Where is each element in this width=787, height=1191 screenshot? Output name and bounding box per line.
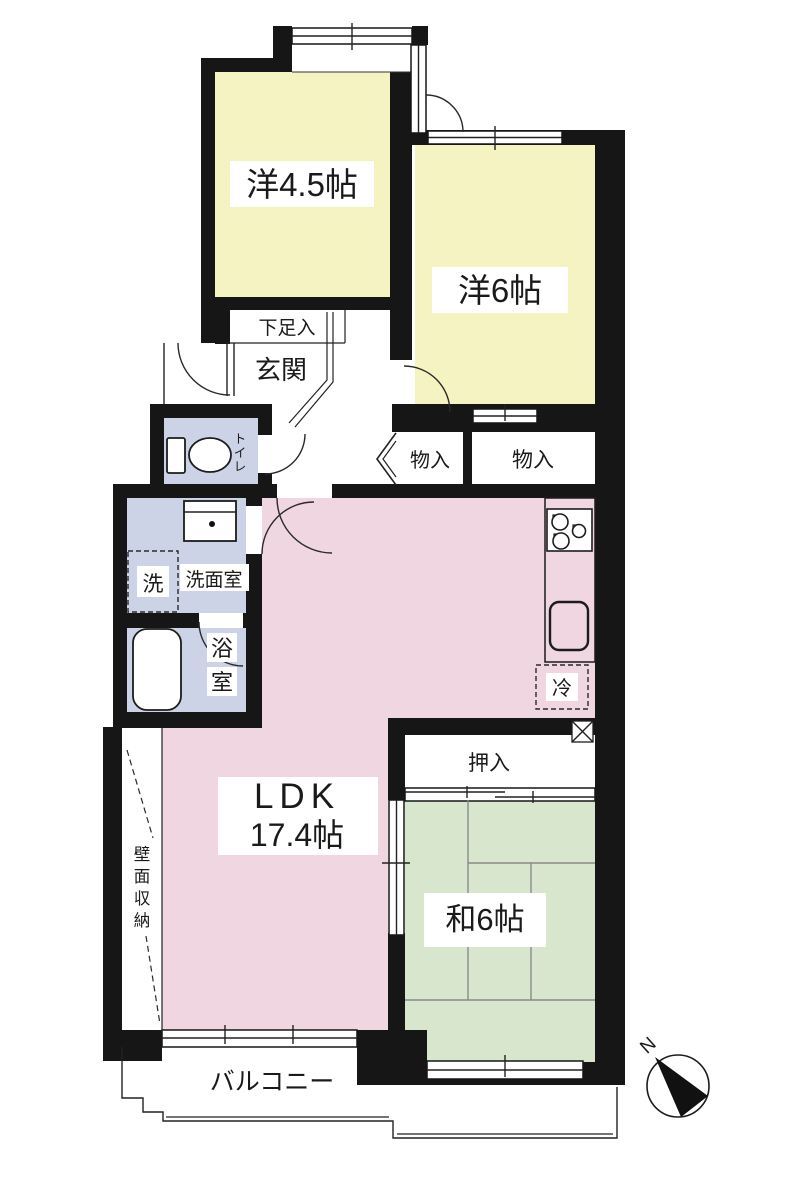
wall-storage-label-char: 面 <box>134 868 151 886</box>
laundry-label: 洗 <box>143 573 164 596</box>
wall-storage-label-char: 納 <box>134 911 151 930</box>
storage-left-label: 物入 <box>410 449 450 472</box>
shoe-cabinet-label: 下足入 <box>258 318 315 339</box>
door-arc-western45 <box>178 343 230 395</box>
toilet-bowl-icon <box>189 438 231 472</box>
washroom-label: 洗面室 <box>185 569 242 591</box>
bath-label-char: 浴 <box>211 636 233 661</box>
refrigerator-label: 冷 <box>552 677 572 700</box>
wall-storage-label-char: 壁 <box>134 845 151 864</box>
oshiire-label: 押入 <box>468 752 510 775</box>
balcony-label: バルコニー <box>210 1068 335 1096</box>
toilet-label-char: レ <box>234 460 247 474</box>
burner-icon <box>552 514 568 530</box>
compass: N <box>636 1033 709 1117</box>
room-western-4-5-label: 洋4.5帖 <box>246 166 358 203</box>
room-ldk-size: 17.4帖 <box>250 817 344 853</box>
door-arc-toilet <box>265 434 305 474</box>
burner-icon <box>573 525 586 538</box>
kitchen-sink-icon <box>550 602 588 650</box>
burner-icon <box>553 533 569 549</box>
room-japanese-6-label: 和6帖 <box>445 902 524 937</box>
washbasin-icon <box>184 501 236 541</box>
floor-plan-canvas: N 洋4.5帖 洋6帖 LDK 17.4帖 和6帖 押入 物入 物入 下足入 玄… <box>0 0 787 1191</box>
bathtub-icon <box>133 629 181 710</box>
washbasin-drain-icon <box>209 521 215 527</box>
oshiire-fusuma <box>405 788 595 801</box>
bifold-door-storage-left <box>377 433 396 485</box>
genkan-label: 玄関 <box>255 355 307 385</box>
floor-plan: N 洋4.5帖 洋6帖 LDK 17.4帖 和6帖 押入 物入 物入 下足入 玄… <box>0 0 787 1191</box>
room-ldk-label: LDK <box>254 777 340 816</box>
bath-label-char: 室 <box>211 670 233 695</box>
compass-north-label: N <box>636 1033 660 1058</box>
room-western-6-label: 洋6帖 <box>458 272 542 309</box>
storage-right-label: 物入 <box>512 449 554 472</box>
entrance-door-arc <box>426 95 463 132</box>
wall-storage-label-char: 収 <box>134 889 151 908</box>
toilet-label-char: イ <box>234 446 247 460</box>
toilet-label-char: ト <box>234 432 247 446</box>
toilet-tank-icon <box>167 438 185 473</box>
